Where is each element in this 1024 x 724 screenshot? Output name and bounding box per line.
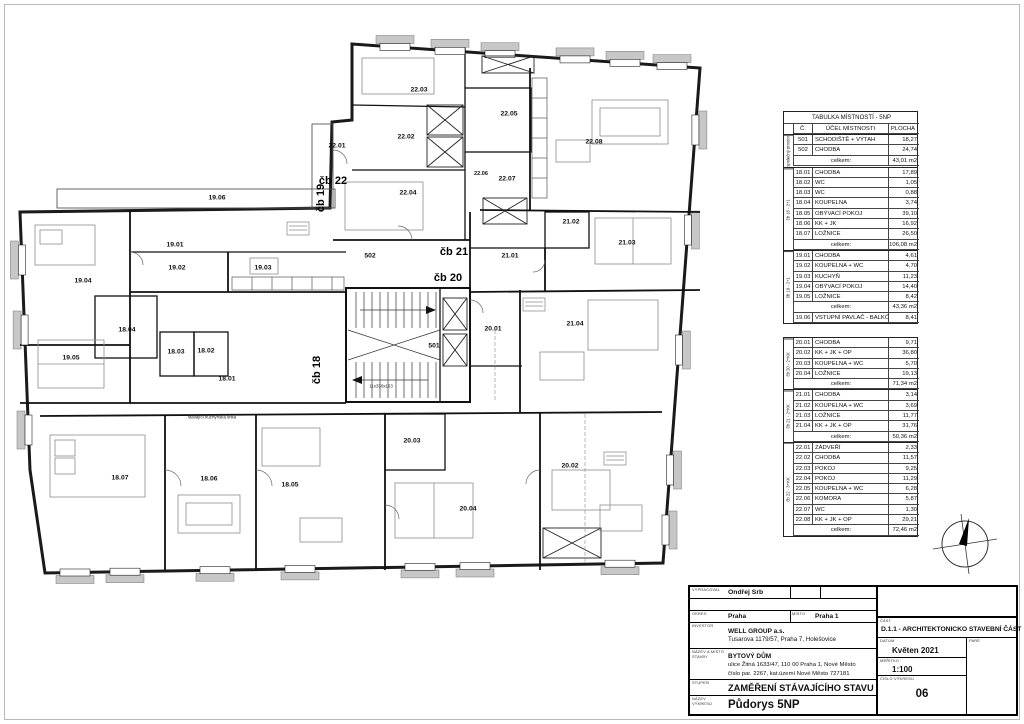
room-label: 18.07 [111,475,128,482]
room-table-group: společný prostor501SCHODIŠTĚ + VÝTAH18,2… [783,134,918,168]
room-area: 0,88 [888,188,919,198]
room-table-column-header: PLOCHA [888,124,919,134]
number-value: 06 [878,688,966,700]
room-number: 20.04 [793,369,812,379]
room-number: 18.07 [793,229,812,239]
room-purpose: LOŽNICE [812,229,888,239]
room-number: 22.01 [793,443,812,453]
room-table-group: čb 18 - 2+118.01CHODBA17,8918.02WC1,0518… [783,167,918,251]
project-name: BYTOVÝ DŮM [728,652,876,661]
room-number: 18.02 [793,178,812,188]
room-area: 8,42 [888,292,919,302]
titleblock-scale-row: MĚŘÍTKO 1:100 [878,658,966,676]
room-label: 18.04 [118,327,135,334]
room-number: 18.04 [793,198,812,208]
room-purpose: OBÝVACÍ POKOJ [812,209,888,219]
room-number: 20.03 [793,359,812,369]
author-value: Ondřej Srb [728,589,763,596]
room-area: 18,27 [888,135,919,145]
room-table-title: TABULKA MÍSTNOSTÍ - 5NP [784,112,919,124]
room-label: 20.04 [459,506,476,513]
room-label: 22.02 [397,134,414,141]
group-total-label: celkem: [793,302,888,312]
room-area: 11,57 [888,453,919,463]
project-parcel: číslo par. 2267, kat.území Nové Město 72… [728,670,876,679]
room-label: 18.01 [218,376,235,383]
group-total-value: 71,34 m2 [888,379,919,389]
room-area: 9,71 [888,338,919,348]
room-area: 2,33 [888,443,919,453]
room-number: 21.01 [793,390,812,400]
room-label: 19.03 [254,265,271,272]
room-area: 1,30 [888,505,919,515]
plan-note: stávající kuchyňská linka [188,415,236,420]
drawing-sheet: { "table": { "title": "TABULKA MÍSTNOSTÍ… [0,0,1024,724]
room-area: 6,28 [888,484,919,494]
titleblock-stage-row: STUPEŇ ZAMĚŘENÍ STÁVAJÍCÍHO STAVU [690,680,876,696]
room-number: 20.02 [793,348,812,358]
room-table-group-label: čb 18 - 2+1 [784,168,793,250]
room-number: 20.01 [793,338,812,348]
unit-label: čb 18 [311,356,323,384]
room-label: 20.03 [403,438,420,445]
district-value: Praha [728,613,746,620]
room-area: 8,41 [888,313,919,323]
room-purpose: CHODBA [812,168,888,178]
room-purpose: KK + JK + OP [812,348,888,358]
room-number: 21.04 [793,421,812,431]
room-purpose: KK + JK + OP [812,515,888,525]
drawing-name-value: Půdorys 5NP [728,699,800,711]
part-label: ČÁST [880,619,914,624]
room-purpose: VSTUPNÍ PAVLAČ - BALKÓN [812,313,888,323]
room-purpose: CHODBA [812,145,888,155]
project-address: ulice Žitná 1633/47, 110 00 Praha 1, Nov… [728,661,876,670]
room-table-group-label: společný prostor [784,135,793,167]
room-area: 3,69 [888,401,919,411]
room-label: 19.01 [166,242,183,249]
room-label: 502 [364,253,375,260]
room-number: 19.03 [793,272,812,282]
room-number: 19.04 [793,282,812,292]
room-number: 22.03 [793,464,812,474]
room-purpose: KOMORA [812,494,888,504]
room-label: 21.01 [501,253,518,260]
room-area: 24,74 [888,145,919,155]
room-purpose: LOŽNICE [812,292,888,302]
room-table: TABULKA MÍSTNOSTÍ - 5NPČ.ÚČEL MÍSTNOSTIP… [783,111,918,537]
room-purpose: CHODBA [812,338,888,348]
room-purpose: SCHODIŠTĚ + VÝTAH [812,135,888,145]
title-block: VYPRACOVAL Ondřej Srb OKRES Praha MÍSTO … [688,585,1018,716]
room-purpose: KK + JK [812,219,888,229]
room-table-group: čb 22 - 3+KK22.01ZÁDVEŘÍ2,3322.02CHODBA1… [783,442,918,537]
investor-label: INVESTOR [692,624,726,629]
room-area: 3,74 [888,198,919,208]
room-label: 22.03 [410,87,427,94]
room-label: 19.06 [208,195,225,202]
room-purpose: CHODBA [812,390,888,400]
room-area: 3,14 [888,390,919,400]
room-purpose: OBÝVACÍ POKOJ [812,282,888,292]
room-table-group: čb 21 - 2+KK21.01CHODBA3,1421.02KOUPELNA… [783,389,918,442]
date-value: Květen 2021 [892,646,939,655]
room-purpose: KK + JK + OP [812,421,888,431]
room-area: 11,77 [888,411,919,421]
room-number: 22.06 [793,494,812,504]
room-area: 39,10 [888,209,919,219]
titleblock-blank-cell [878,587,1016,618]
unit-label: čb 19 [315,184,327,212]
pare-label: PARÉ [969,639,1003,644]
north-compass-icon [930,512,1000,582]
room-purpose: KOUPELNA + WC [812,261,888,271]
room-purpose: LOŽNICE [812,369,888,379]
room-number: 22.07 [793,505,812,515]
titleblock-number-row: ČÍSLO VÝKRESU 06 [878,676,966,714]
titleblock-author-row: VYPRACOVAL Ondřej Srb [690,587,876,599]
room-area: 26,50 [888,229,919,239]
titleblock-investor-row: INVESTOR WELL GROUP a.s. Tusarova 1179/5… [690,623,876,649]
room-number: 18.01 [793,168,812,178]
group-total-value: 50,36 m2 [888,432,919,442]
room-number: 19.01 [793,251,812,261]
scale-value: 1:100 [892,665,912,674]
room-label: 22.04 [399,190,416,197]
room-label: 22.01 [328,143,345,150]
titleblock-drawing-row: NÁZEV VÝKRESU Půdorys 5NP [690,696,876,714]
room-label: 19.04 [74,278,91,285]
date-label: DATUM [880,639,914,644]
district-label: OKRES [692,612,726,617]
room-purpose: ZÁDVEŘÍ [812,443,888,453]
room-table-group: čb 20 - 2+KK20.01CHODBA9,7120.02KK + JK … [783,337,918,390]
room-area: 14,40 [888,282,919,292]
room-purpose: WC [812,178,888,188]
room-number: 501 [793,135,812,145]
group-total-label: celkem: [793,240,888,250]
room-table-group-label: čb 21 - 2+KK [784,390,793,441]
room-label: 18.06 [200,476,217,483]
group-total-value: 43,36 m2 [888,302,919,312]
room-table-group-label: čb 19 - 2+1 [784,251,793,323]
scale-label: MĚŘÍTKO [880,659,914,664]
titleblock-project-row: NÁZEV A MÍSTO STAVBY BYTOVÝ DŮM ulice Ži… [690,649,876,680]
author-label: VYPRACOVAL [692,588,726,593]
investor-name: WELL GROUP a.s. [728,627,876,636]
room-label: 21.02 [562,219,579,226]
room-number: 22.02 [793,453,812,463]
room-label: 19.05 [62,355,79,362]
unit-label: čb 20 [434,272,462,284]
room-purpose: KOUPELNA + WC [812,359,888,369]
room-label: 20.02 [561,463,578,470]
room-area: 1,05 [888,178,919,188]
titleblock-part-row: ČÁST D.1.1 - ARCHITEKTONICKO STAVEBNÍ ČÁ… [878,618,1016,638]
number-label: ČÍSLO VÝKRESU [880,677,914,682]
room-number: 18.05 [793,209,812,219]
room-area: 11,23 [888,272,919,282]
room-label: 21.03 [618,240,635,247]
project-label: NÁZEV A MÍSTO STAVBY [692,650,726,659]
room-label: 22.05 [500,111,517,118]
room-purpose: CHODBA [812,251,888,261]
room-area: 4,61 [888,251,919,261]
room-number: 22.04 [793,474,812,484]
group-total-label: celkem: [793,432,888,442]
group-total-value: 106,08 m2 [888,240,919,250]
room-table-group: čb 19 - 2+119.01CHODBA4,6119.02KOUPELNA … [783,250,918,324]
group-total-label: celkem: [793,379,888,389]
group-total-value: 72,46 m2 [888,525,919,535]
room-table-column-header: ÚČEL MÍSTNOSTI [812,124,888,134]
room-number: 21.02 [793,401,812,411]
room-area: 29,21 [888,515,919,525]
room-label: 18.05 [281,482,298,489]
room-area: 31,76 [888,421,919,431]
room-purpose: WC [812,188,888,198]
titleblock-empty-row [690,599,876,611]
room-table-header: TABULKA MÍSTNOSTÍ - 5NPČ.ÚČEL MÍSTNOSTIP… [783,111,918,135]
stage-label: STUPEŇ [692,681,726,686]
titleblock-meta: DATUM Květen 2021 MĚŘÍTKO 1:100 ČÍSLO VÝ… [878,638,1016,714]
room-label: 22.08 [585,139,602,146]
room-number: 22.05 [793,484,812,494]
room-area: 16,92 [888,219,919,229]
room-purpose: POKOJ [812,474,888,484]
room-purpose: WC [812,505,888,515]
room-number: 18.03 [793,188,812,198]
room-number: 502 [793,145,812,155]
room-number: 19.02 [793,261,812,271]
titleblock-date-row: DATUM Květen 2021 [878,638,966,658]
stage-value: ZAMĚŘENÍ STÁVAJÍCÍHO STAVU [728,683,874,693]
room-area: 36,80 [888,348,919,358]
room-area: 19,13 [888,369,919,379]
room-purpose: POKOJ [812,464,888,474]
room-purpose: KOUPELNA + WC [812,484,888,494]
room-label: 18.02 [197,348,214,355]
room-purpose: CHODBA [812,453,888,463]
room-number: 19.05 [793,292,812,302]
titleblock-pare-cell: PARÉ [966,638,1016,714]
room-area: 5,70 [888,359,919,369]
room-purpose: KOUPELNA [812,198,888,208]
room-purpose: KOUPELNA + WC [812,401,888,411]
room-purpose: LOŽNICE [812,411,888,421]
room-table-group-label: čb 20 - 2+KK [784,338,793,389]
room-label: 22.07 [498,176,515,183]
room-label: 501 [428,343,439,350]
drawing-name-label: NÁZEV VÝKRESU [692,697,726,706]
group-total-value: 43,01 m2 [888,156,919,166]
room-table-column-header: Č. [793,124,812,134]
city-value: Praha 1 [815,611,839,623]
unit-label: čb 21 [440,246,468,258]
plan-note: 11x330x163 [369,384,393,389]
room-label: 21.04 [566,321,583,328]
room-number: 18.06 [793,219,812,229]
room-number: 22.08 [793,515,812,525]
investor-address: Tusarova 1179/57, Praha 7, Holešovice [728,636,876,645]
room-area: 9,25 [888,464,919,474]
room-number: 21.03 [793,411,812,421]
room-purpose: KUCHYŇ [812,272,888,282]
room-label: 19.02 [168,265,185,272]
room-area: 11,29 [888,474,919,484]
room-number: 19.06 [793,313,812,323]
room-label: 18.03 [167,349,184,356]
room-area: 17,89 [888,168,919,178]
room-table-group-label: čb 22 - 3+KK [784,443,793,536]
group-total-label: celkem: [793,525,888,535]
part-value: D.1.1 - ARCHITEKTONICKO STAVEBNÍ ČÁST [881,626,1021,633]
room-area: 5,87 [888,494,919,504]
room-label: 20.01 [484,326,501,333]
room-label: 22.06 [474,171,488,177]
titleblock-district-row: OKRES Praha MÍSTO Praha 1 [690,611,876,623]
room-area: 4,70 [888,261,919,271]
group-total-label: celkem: [793,156,888,166]
